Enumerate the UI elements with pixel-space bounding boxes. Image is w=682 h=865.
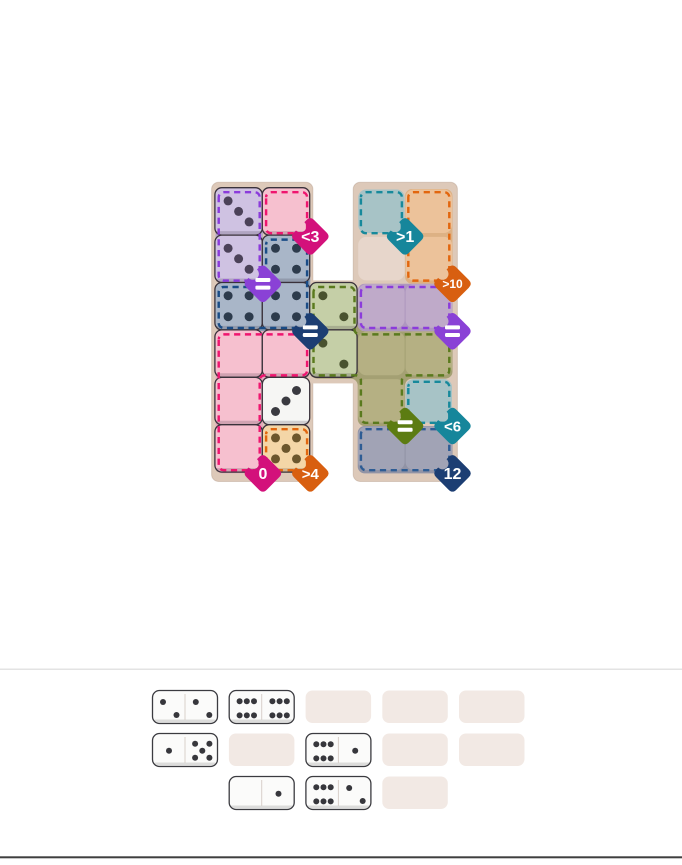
svg-text:>10: >10 xyxy=(442,277,463,291)
svg-text:<6: <6 xyxy=(444,418,461,435)
svg-text:<3: <3 xyxy=(301,229,319,246)
svg-text:0: 0 xyxy=(258,466,267,483)
svg-text:>4: >4 xyxy=(302,466,320,483)
svg-text:12: 12 xyxy=(444,466,462,483)
svg-text:>1: >1 xyxy=(396,229,414,246)
